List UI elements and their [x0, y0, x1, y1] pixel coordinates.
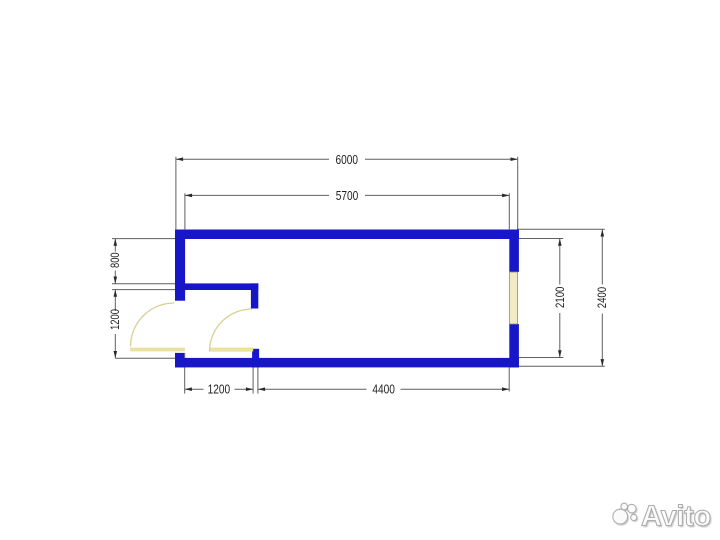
svg-text:6000: 6000	[336, 153, 359, 167]
svg-text:5700: 5700	[336, 189, 359, 203]
svg-text:4400: 4400	[372, 382, 395, 396]
svg-text:800: 800	[109, 252, 122, 268]
svg-text:1200: 1200	[208, 383, 231, 397]
svg-text:2100: 2100	[554, 287, 567, 308]
svg-text:2400: 2400	[596, 287, 609, 308]
svg-text:1200: 1200	[109, 309, 122, 330]
